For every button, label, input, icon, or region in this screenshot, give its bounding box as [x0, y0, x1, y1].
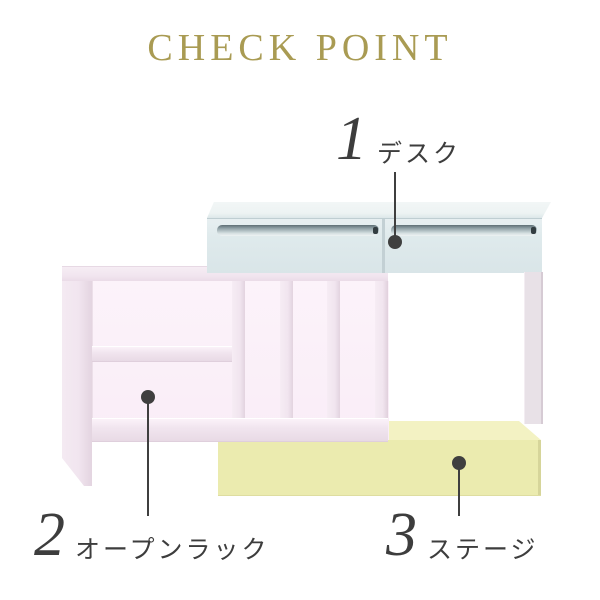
- pointer-dot-stage: [452, 456, 466, 470]
- drawer-handle-right: [391, 225, 537, 236]
- rack-divider: [327, 281, 340, 418]
- drawer-divider: [382, 219, 385, 273]
- open-rack-middle-shelf: [92, 346, 232, 361]
- pointer-line-desk: [394, 172, 396, 242]
- callout-desk-label: デスク: [377, 134, 461, 170]
- pointer-dot-open-rack: [141, 390, 155, 404]
- open-rack-bottom-shelf: [92, 418, 388, 441]
- pointer-line-open-rack: [147, 397, 149, 516]
- callout-open-rack-label: オープンラック: [75, 530, 270, 566]
- stage-platform-front: [218, 440, 541, 496]
- pointer-dot-desk: [388, 235, 402, 249]
- open-rack-end-panel: [375, 281, 388, 418]
- callout-open-rack-number: 2: [34, 506, 65, 565]
- callout-desk-number: 1: [336, 110, 367, 169]
- checkpoint-figure: CHECK POINT 1 デスク 2 オープンラック 3 ステージ: [0, 0, 600, 600]
- desk-drawer-unit: [207, 218, 542, 273]
- callout-stage-label: ステージ: [427, 530, 539, 566]
- callout-stage-number: 3: [386, 506, 417, 565]
- desk-right-leg: [524, 272, 543, 424]
- page-title: CHECK POINT: [0, 26, 600, 70]
- callout-stage: 3 ステージ: [386, 506, 539, 566]
- callout-open-rack: 2 オープンラック: [34, 506, 270, 566]
- callout-desk: 1 デスク: [336, 110, 461, 170]
- rack-divider: [232, 281, 245, 418]
- desk-top-surface: [207, 202, 551, 218]
- rack-divider: [280, 281, 293, 418]
- open-rack-side-panel: [62, 281, 92, 486]
- drawer-handle-left: [217, 225, 379, 236]
